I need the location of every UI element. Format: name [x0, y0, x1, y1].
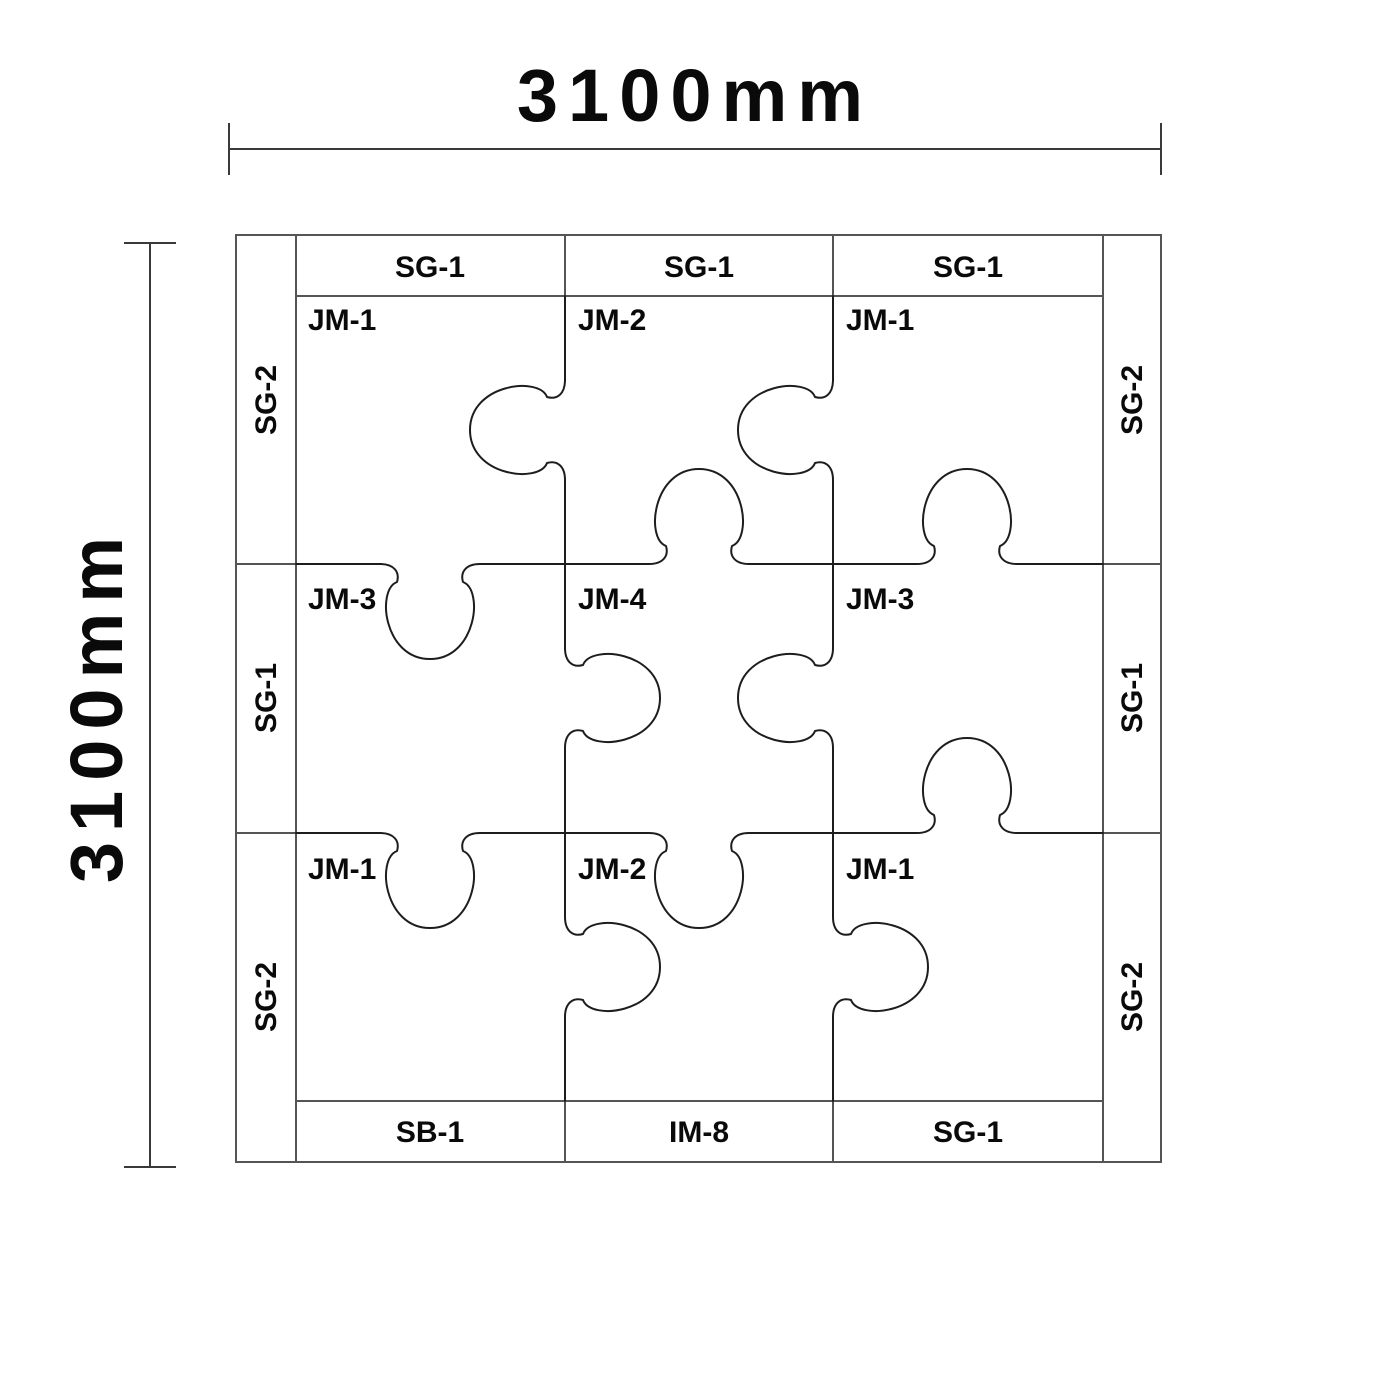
left-strip-label-1: SG-2 [250, 365, 283, 435]
bottom-strip-label-1: SB-1 [396, 1116, 464, 1149]
piece-boundary-vertical-2 [738, 296, 928, 1101]
piece-label-r3c3: JM-1 [846, 853, 914, 886]
piece-label-r1c1: JM-1 [308, 304, 376, 337]
piece-label-r2c1: JM-3 [308, 583, 376, 616]
height-dimension: 3100mm [55, 243, 176, 1167]
piece-boundary-horizontal-1 [296, 469, 1103, 659]
bottom-strip-label-2: IM-8 [669, 1116, 729, 1149]
top-strip-label-3: SG-1 [933, 251, 1003, 284]
piece-label-r2c3: JM-3 [846, 583, 914, 616]
height-dimension-label: 3100mm [55, 527, 138, 883]
width-dimension: 3100mm [229, 54, 1161, 175]
left-strip-label-2: SG-1 [250, 663, 283, 733]
top-strip-label-2: SG-1 [664, 251, 734, 284]
piece-label-r3c2: JM-2 [578, 853, 646, 886]
bottom-strip-label-3: SG-1 [933, 1116, 1003, 1149]
right-strip-label-1: SG-2 [1116, 365, 1149, 435]
mat-layout-drawing: 3100mm 3100mm SG-1 SG-1 SG-1 SB-1 IM-8 S… [0, 0, 1400, 1400]
piece-boundaries [296, 296, 1103, 1101]
drawing-svg: 3100mm 3100mm SG-1 SG-1 SG-1 SB-1 IM-8 S… [0, 0, 1400, 1400]
piece-label-r2c2: JM-4 [578, 583, 647, 616]
piece-label-r3c1: JM-1 [308, 853, 376, 886]
left-strip-label-3: SG-2 [250, 962, 283, 1032]
top-strip-label-1: SG-1 [395, 251, 465, 284]
strip-labels: SG-1 SG-1 SG-1 SB-1 IM-8 SG-1 SG-2 SG-1 … [250, 251, 1149, 1149]
piece-boundary-vertical-1 [470, 296, 660, 1101]
right-strip-label-2: SG-1 [1116, 663, 1149, 733]
outer-frame [236, 235, 1161, 1162]
piece-boundary-horizontal-2 [296, 738, 1103, 928]
right-strip-label-3: SG-2 [1116, 962, 1149, 1032]
piece-label-r1c2: JM-2 [578, 304, 646, 337]
piece-label-r1c3: JM-1 [846, 304, 914, 337]
width-dimension-label: 3100mm [517, 54, 873, 137]
piece-labels: JM-1 JM-2 JM-1 JM-3 JM-4 JM-3 JM-1 JM-2 … [308, 304, 914, 886]
